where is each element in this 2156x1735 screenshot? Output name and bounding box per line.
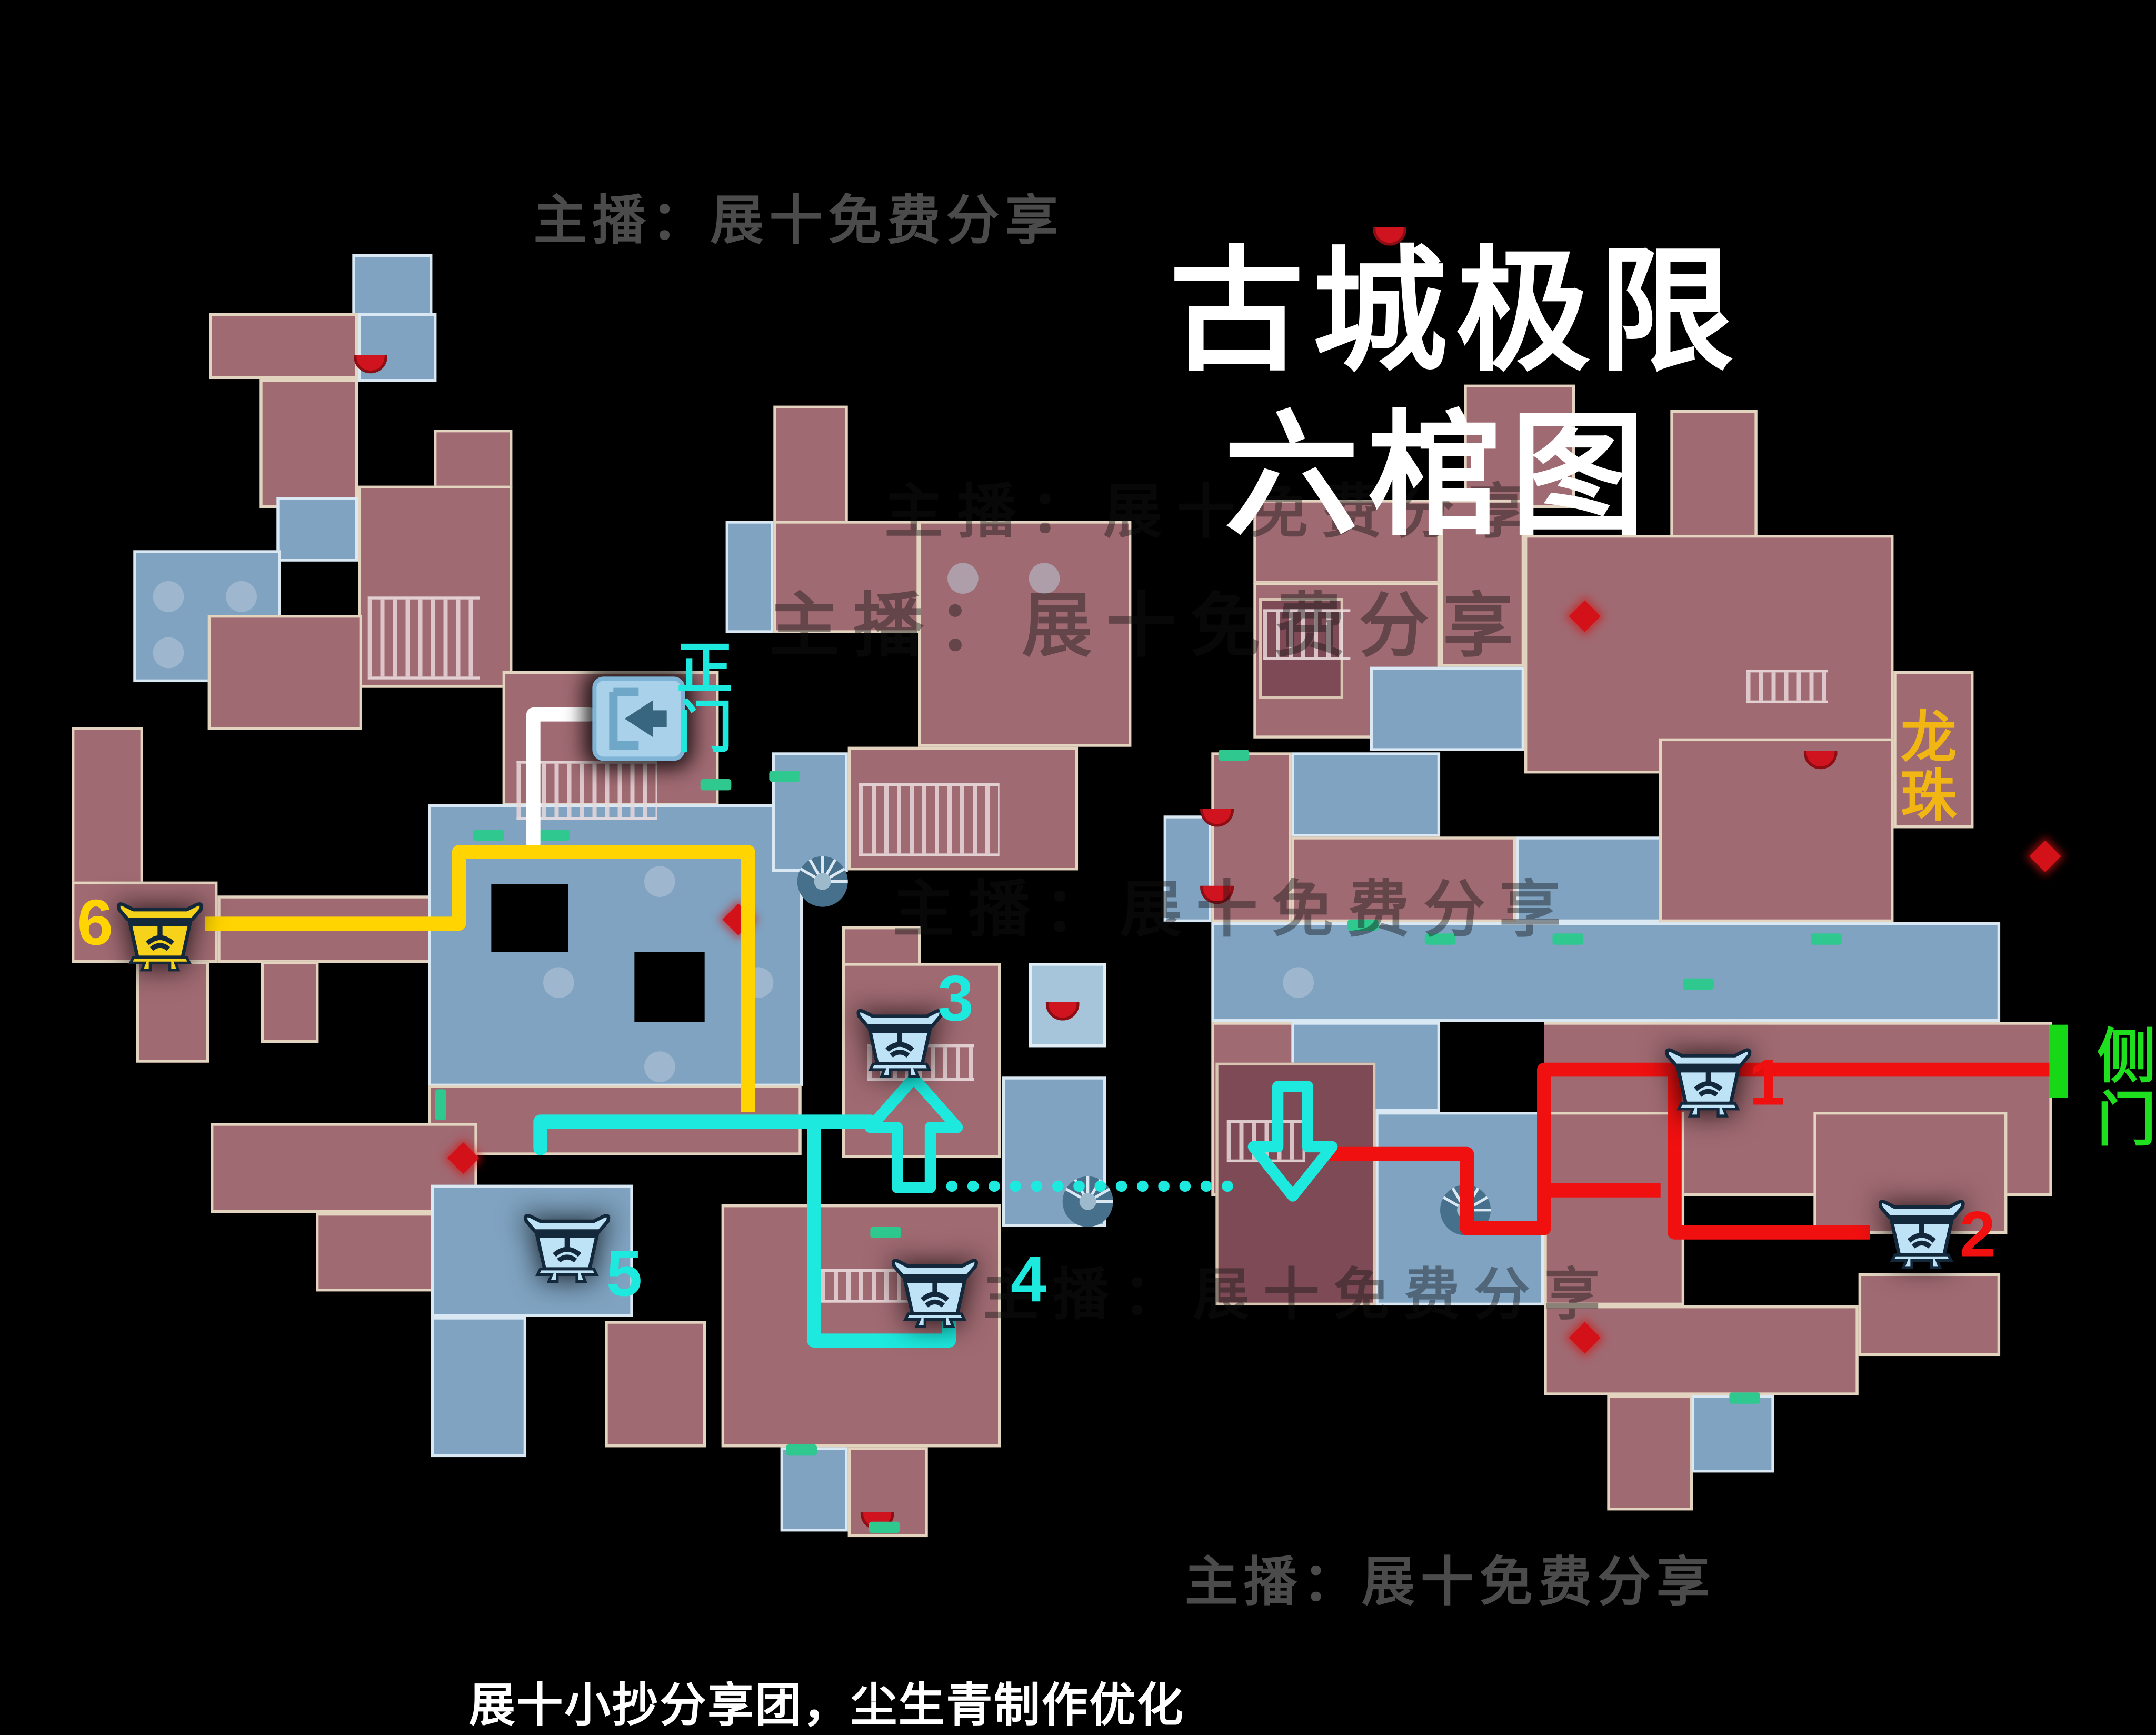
down-arrow: [1253, 1086, 1332, 1196]
watermark-top: 主播：展十免费分享: [533, 177, 1064, 254]
up-arrow: [870, 1078, 957, 1188]
coffin-number-5: 5: [606, 1241, 642, 1305]
coffin-number-1: 1: [1749, 1050, 1785, 1115]
coffin-number-2: 2: [1960, 1202, 1995, 1267]
coffin-number-6: 6: [77, 890, 113, 955]
white-route: [533, 714, 590, 843]
map-canvas: 主播：展十免费分享 主播：展十免费分享 主播：展十免费分享 主播：展十免费分享 …: [0, 0, 2156, 1724]
coffin-number-4: 4: [1011, 1247, 1046, 1311]
watermark-bottom: 主播：展十免费分享: [1185, 1539, 1715, 1616]
coffin-number-3: 3: [937, 966, 973, 1031]
main-gate-label: 正 门: [676, 640, 733, 759]
map-title-line2: 六棺图: [1224, 410, 1653, 545]
credit-line: 展十小抄分享团，尘生青制作优化: [469, 1668, 1185, 1735]
side-door-marker: [2049, 1025, 2068, 1098]
side-gate-label: 侧 门: [2097, 1026, 2156, 1151]
dragon-pearl-label: 龙 珠: [1901, 709, 1957, 828]
main-gate-statue-icon: [592, 676, 685, 761]
yellow-route: [205, 852, 748, 1112]
routes-overlay: [0, 0, 2156, 1725]
map-title-line1: 古城极限: [1169, 246, 1742, 381]
